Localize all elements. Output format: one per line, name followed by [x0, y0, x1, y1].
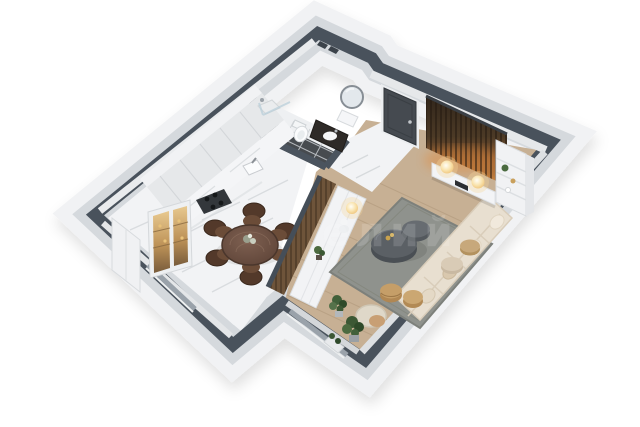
shelf-plant — [502, 165, 509, 172]
display-cabinet-door-left — [153, 211, 170, 273]
washbasin — [323, 132, 337, 141]
console-lamp — [441, 161, 454, 174]
watermark-text: елий — [322, 210, 458, 256]
fabric-pouf — [441, 257, 463, 274]
floor-plan-screenshot: елий — [0, 0, 640, 427]
display-cabinet-door-right — [173, 206, 188, 266]
door-handle — [408, 120, 412, 124]
shelf-amber-vase — [511, 179, 516, 184]
mirror-washbasin — [337, 110, 358, 127]
wicker-pouf — [460, 240, 480, 256]
wicker-pouf — [380, 284, 402, 303]
shelf-white-vase — [506, 188, 511, 193]
display-cabinet — [148, 200, 192, 278]
wicker-pouf — [403, 290, 423, 308]
shelving-side-panel — [526, 154, 534, 216]
shelving-frame — [496, 140, 526, 216]
console-lamp — [472, 176, 485, 189]
shower-head — [260, 98, 264, 102]
floor-plan-render: елий — [0, 0, 640, 427]
armchair-cushion — [369, 315, 385, 327]
vanity-faucet — [335, 130, 338, 133]
round-mirror — [341, 86, 363, 108]
